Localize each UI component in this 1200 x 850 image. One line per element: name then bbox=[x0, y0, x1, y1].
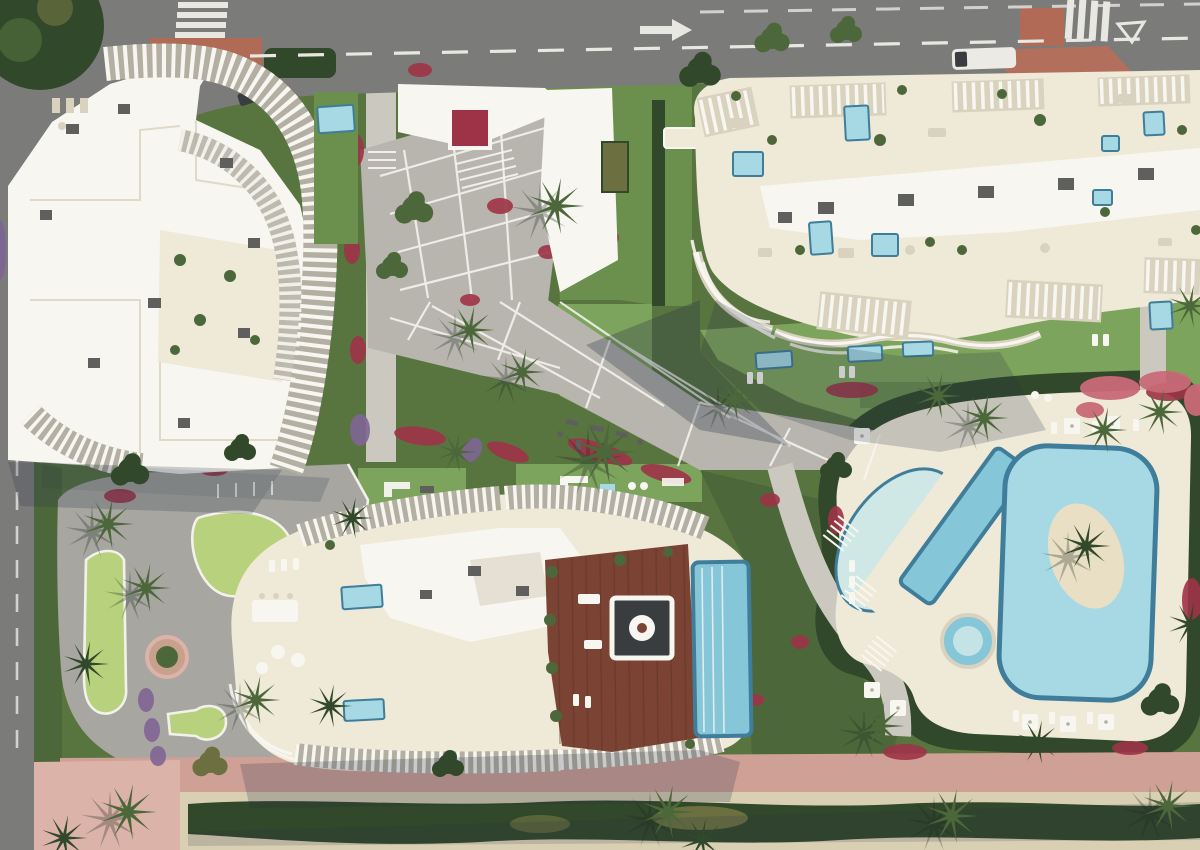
lounger bbox=[1087, 712, 1093, 724]
lounger bbox=[281, 559, 287, 571]
umbrella bbox=[1098, 714, 1114, 730]
pink-corner-plaza bbox=[34, 760, 180, 850]
umbrella bbox=[890, 700, 906, 716]
outdoor-dining-table bbox=[664, 128, 698, 148]
building-a-garden-pool bbox=[317, 105, 355, 133]
building-c bbox=[230, 493, 752, 771]
roundabout-plants bbox=[0, 18, 42, 62]
lounger bbox=[293, 558, 299, 570]
umbrella bbox=[1064, 418, 1080, 434]
building-c-rooftop-pool bbox=[692, 562, 751, 737]
garden-shed bbox=[602, 142, 628, 192]
deck-pavilion-table-center bbox=[637, 623, 647, 633]
lounger bbox=[849, 560, 855, 572]
lounger bbox=[585, 696, 591, 708]
umbrella bbox=[1060, 716, 1076, 732]
lounger bbox=[1133, 419, 1139, 431]
umbrella bbox=[864, 682, 880, 698]
lounger bbox=[1092, 334, 1098, 346]
lounger bbox=[269, 560, 275, 572]
lounger bbox=[1051, 422, 1057, 434]
building-a bbox=[8, 61, 358, 474]
lounger bbox=[573, 694, 579, 706]
bus-windshield bbox=[955, 52, 968, 67]
lounger bbox=[1103, 334, 1109, 346]
round-planter-bush bbox=[156, 646, 178, 668]
lounger bbox=[1049, 712, 1055, 724]
building-a-terrace-court bbox=[158, 230, 290, 382]
roadside-hedge bbox=[264, 48, 336, 78]
aerial-render-masterplan bbox=[0, 0, 1200, 850]
scene-canvas bbox=[0, 0, 1200, 850]
lounger bbox=[1013, 710, 1019, 722]
courtyard-planter-frame bbox=[450, 108, 490, 148]
jacuzzi-inner bbox=[953, 626, 983, 656]
